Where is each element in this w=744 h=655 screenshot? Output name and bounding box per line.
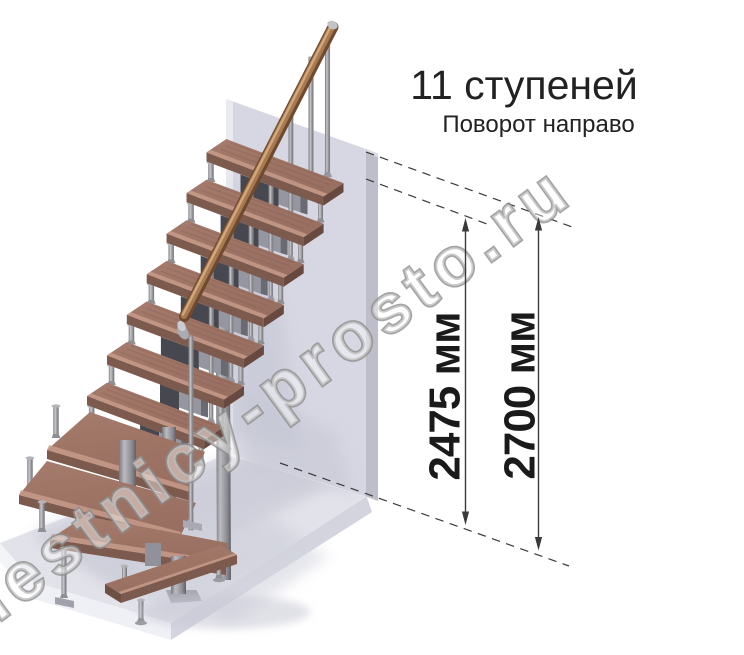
svg-text:2475 мм: 2475 мм [421,312,470,480]
svg-text:2700 мм: 2700 мм [496,311,545,479]
svg-text:Поворот направо: Поворот направо [442,111,634,138]
svg-text:11 ступеней: 11 ступеней [410,62,638,108]
